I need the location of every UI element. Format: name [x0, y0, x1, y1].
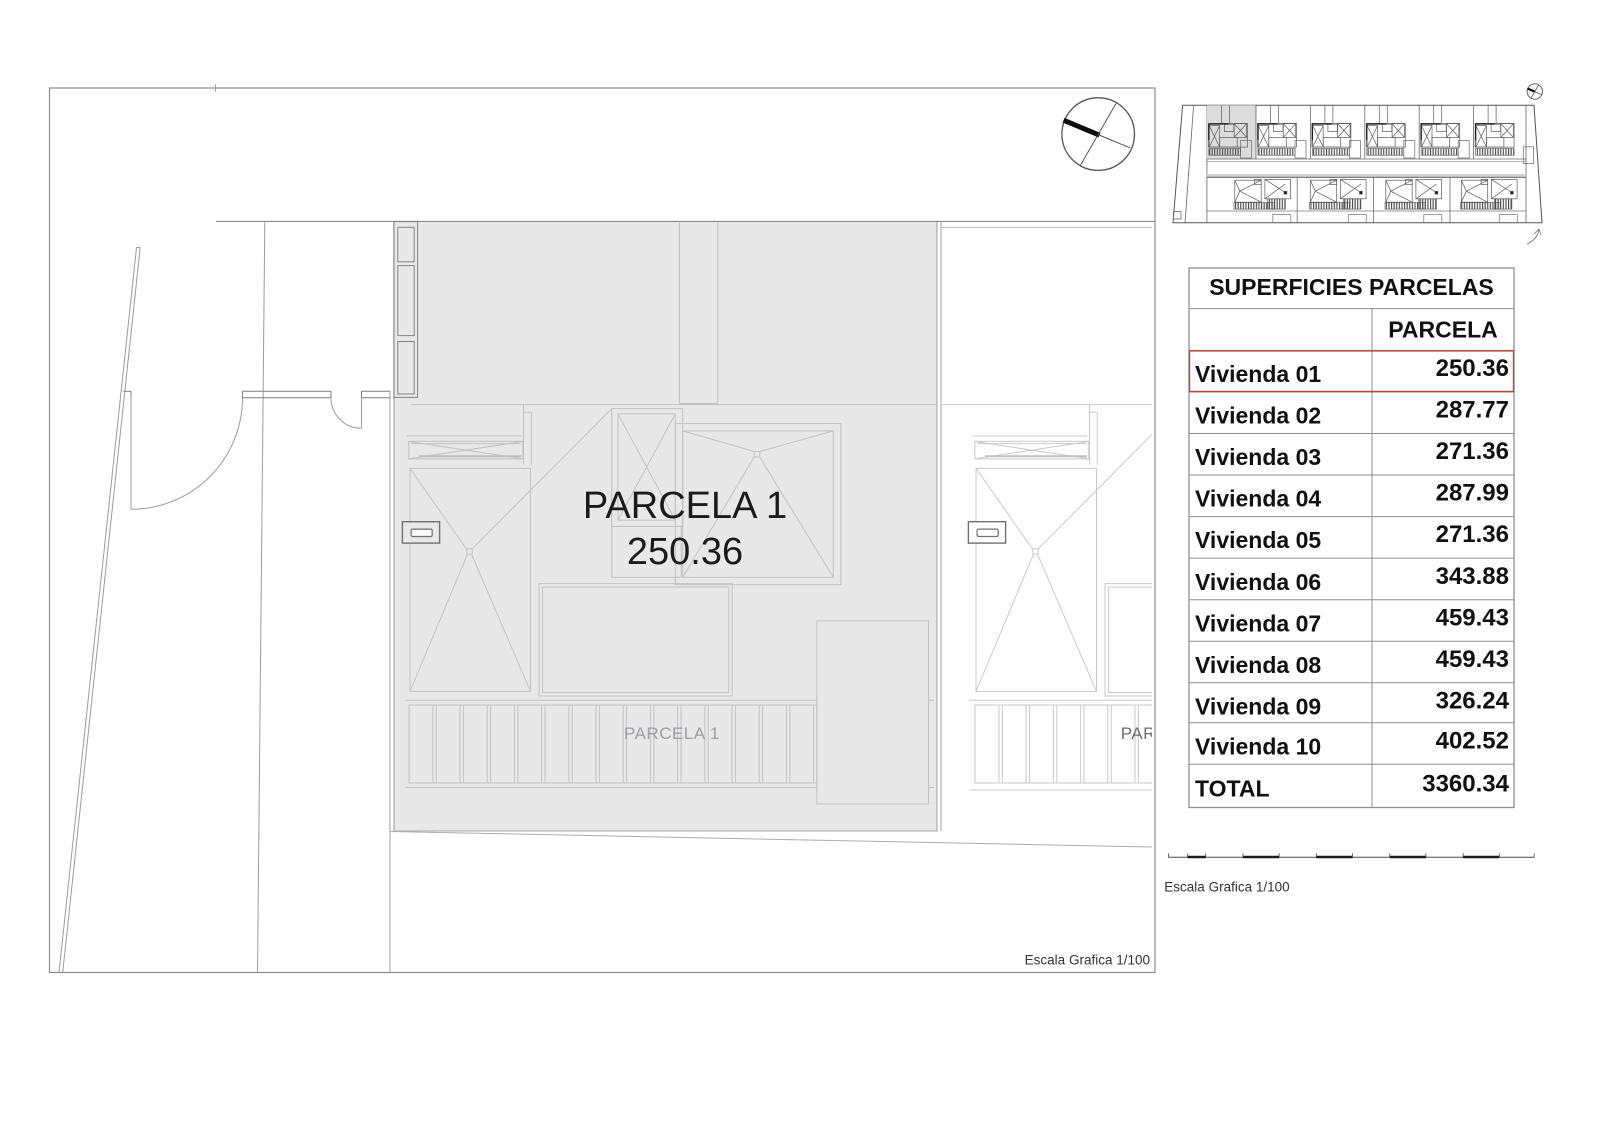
svg-text:271.36: 271.36	[1436, 521, 1509, 548]
svg-text:Vivienda 10: Vivienda 10	[1195, 734, 1321, 760]
svg-text:326.24: 326.24	[1436, 687, 1510, 714]
svg-text:PARCELA 1: PARCELA 1	[583, 485, 787, 527]
svg-text:287.99: 287.99	[1436, 480, 1509, 507]
svg-text:PARCELA 1: PARCELA 1	[624, 724, 720, 743]
svg-text:PARCELA: PARCELA	[1388, 316, 1497, 342]
svg-text:402.52: 402.52	[1436, 728, 1509, 755]
svg-text:287.77: 287.77	[1436, 397, 1509, 424]
svg-text:250.36: 250.36	[1436, 355, 1509, 382]
svg-text:Escala Grafica 1/100: Escala Grafica 1/100	[1025, 953, 1150, 968]
svg-text:Vivienda 07: Vivienda 07	[1195, 610, 1321, 636]
svg-text:Vivienda 04: Vivienda 04	[1195, 486, 1321, 512]
svg-text:TOTAL: TOTAL	[1195, 776, 1270, 802]
svg-text:343.88: 343.88	[1436, 563, 1509, 590]
svg-text:Vivienda 01: Vivienda 01	[1195, 361, 1321, 387]
svg-text:Vivienda 06: Vivienda 06	[1195, 569, 1321, 595]
svg-text:Escala Grafica 1/100: Escala Grafica 1/100	[1164, 880, 1289, 895]
svg-text:459.43: 459.43	[1436, 604, 1509, 631]
svg-text:Vivienda 02: Vivienda 02	[1195, 403, 1321, 429]
svg-text:Vivienda 09: Vivienda 09	[1195, 693, 1321, 719]
svg-text:271.36: 271.36	[1436, 438, 1509, 465]
svg-text:SUPERFICIES PARCELAS: SUPERFICIES PARCELAS	[1209, 274, 1494, 300]
svg-text:459.43: 459.43	[1436, 646, 1509, 673]
svg-text:250.36: 250.36	[627, 531, 743, 573]
svg-text:Vivienda 03: Vivienda 03	[1195, 444, 1321, 470]
svg-text:3360.34: 3360.34	[1422, 771, 1509, 798]
svg-text:Vivienda 05: Vivienda 05	[1195, 527, 1321, 553]
svg-text:Vivienda 08: Vivienda 08	[1195, 652, 1321, 678]
